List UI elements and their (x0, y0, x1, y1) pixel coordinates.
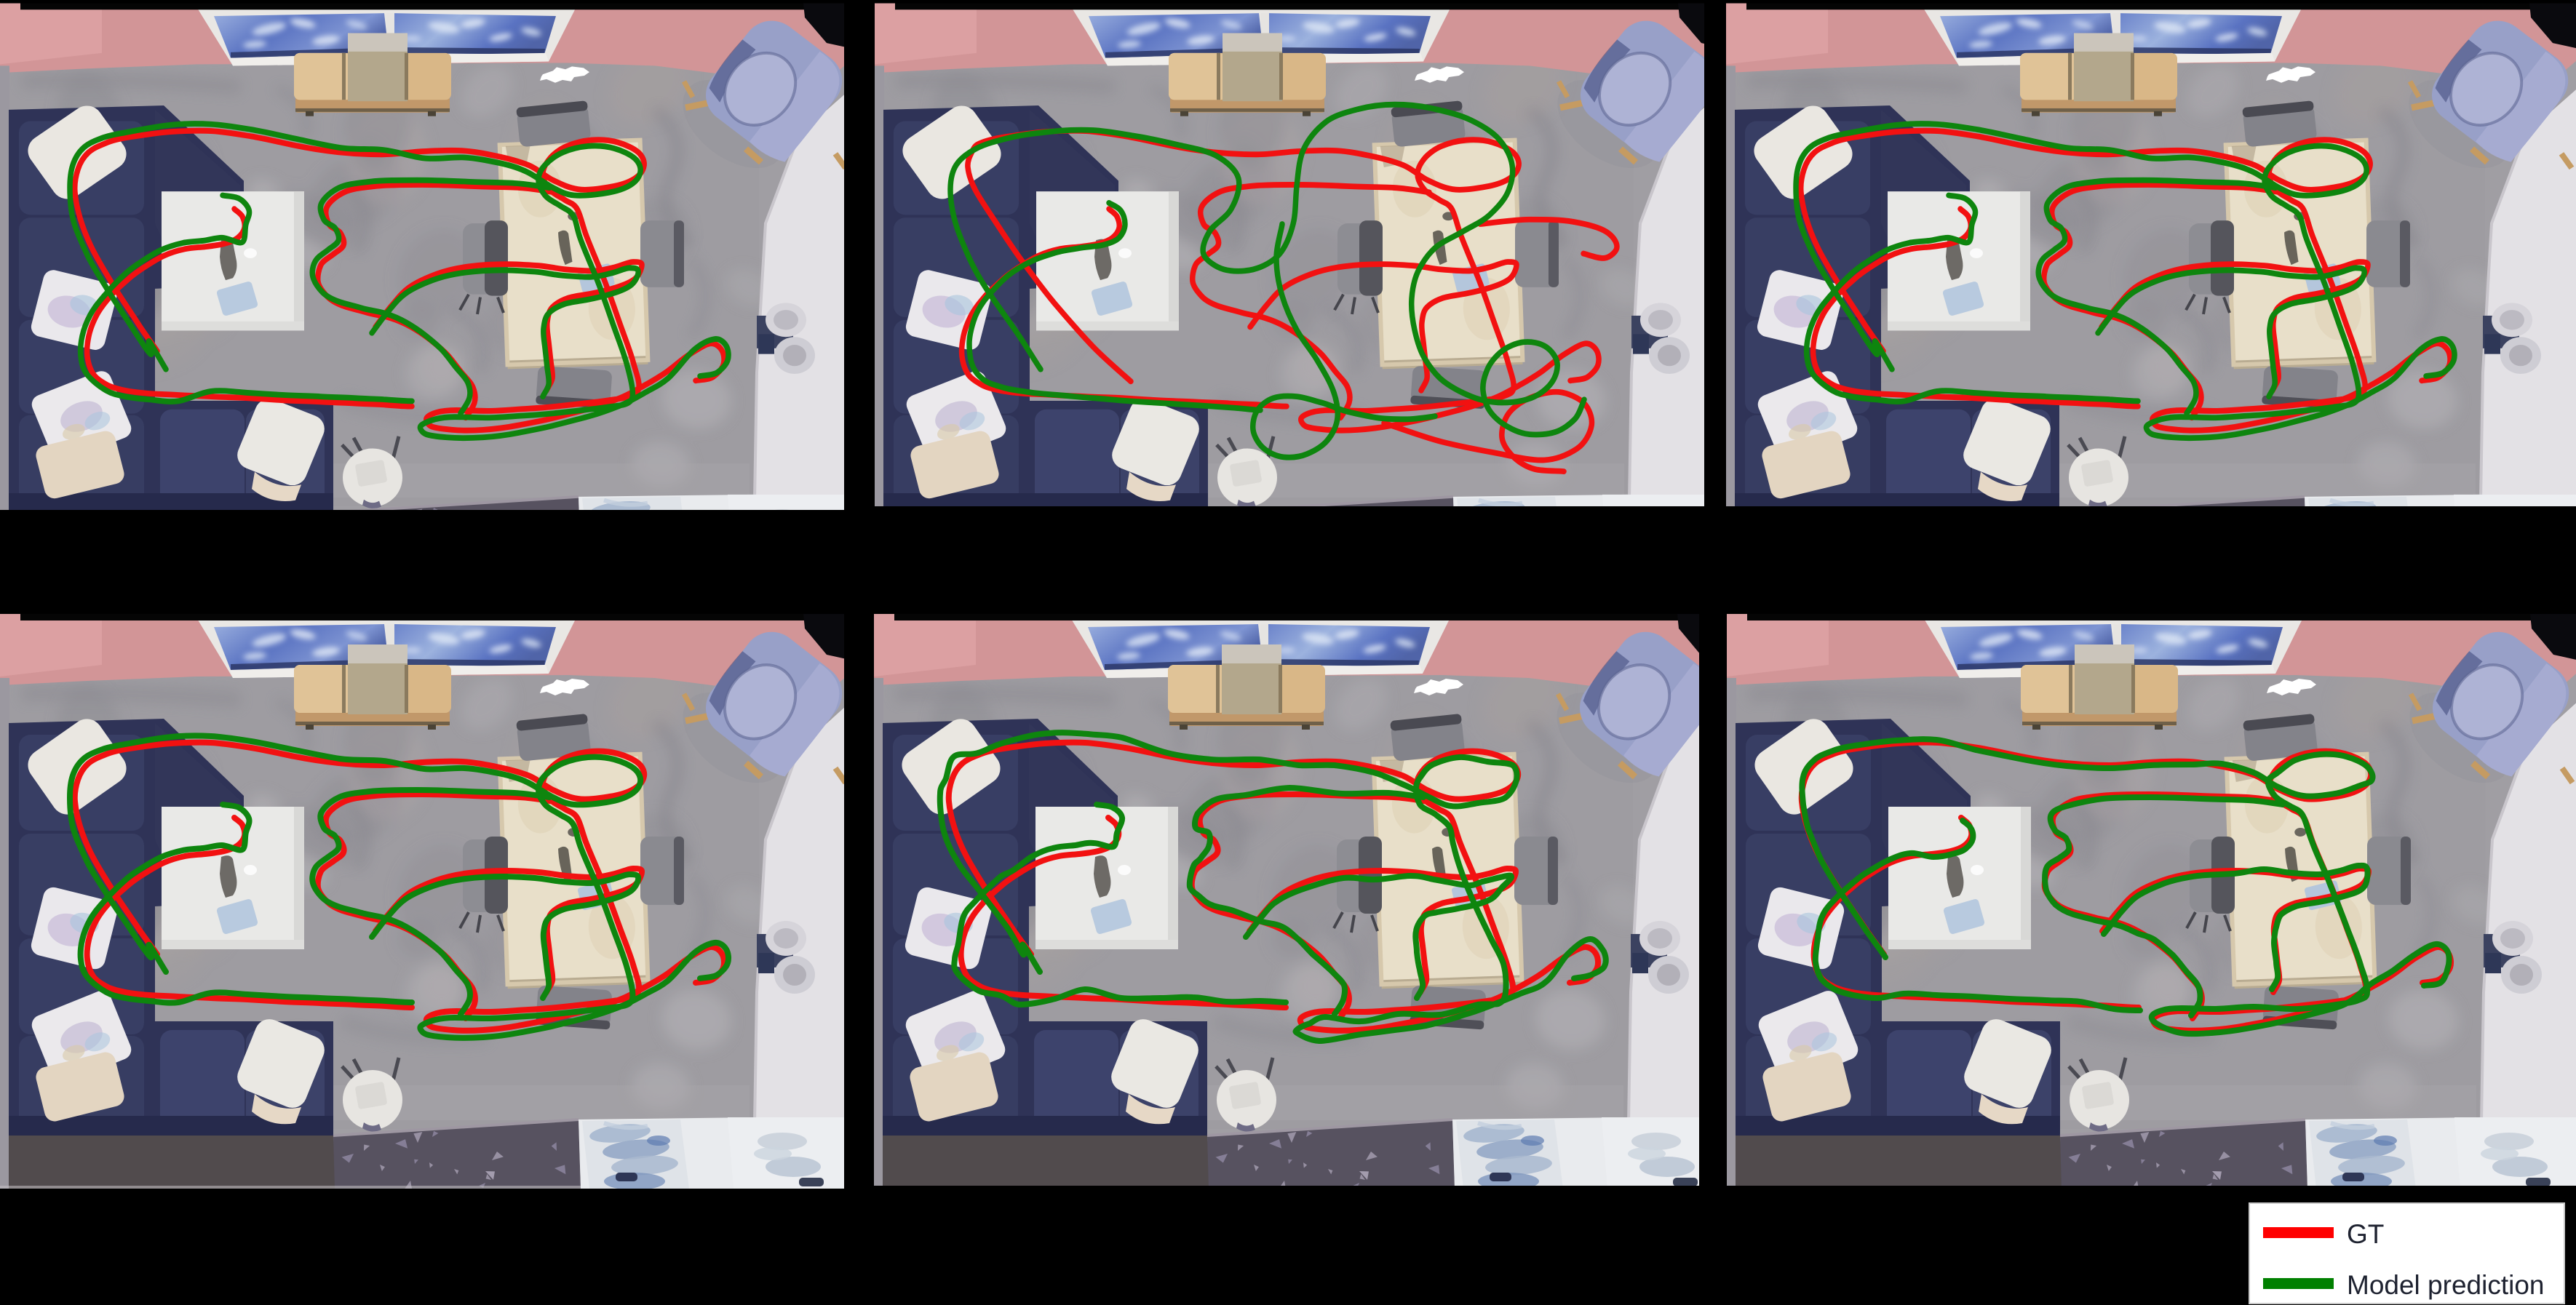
svg-text:GT: GT (2347, 1219, 2384, 1249)
svg-text:Model prediction: Model prediction (2347, 1270, 2544, 1300)
